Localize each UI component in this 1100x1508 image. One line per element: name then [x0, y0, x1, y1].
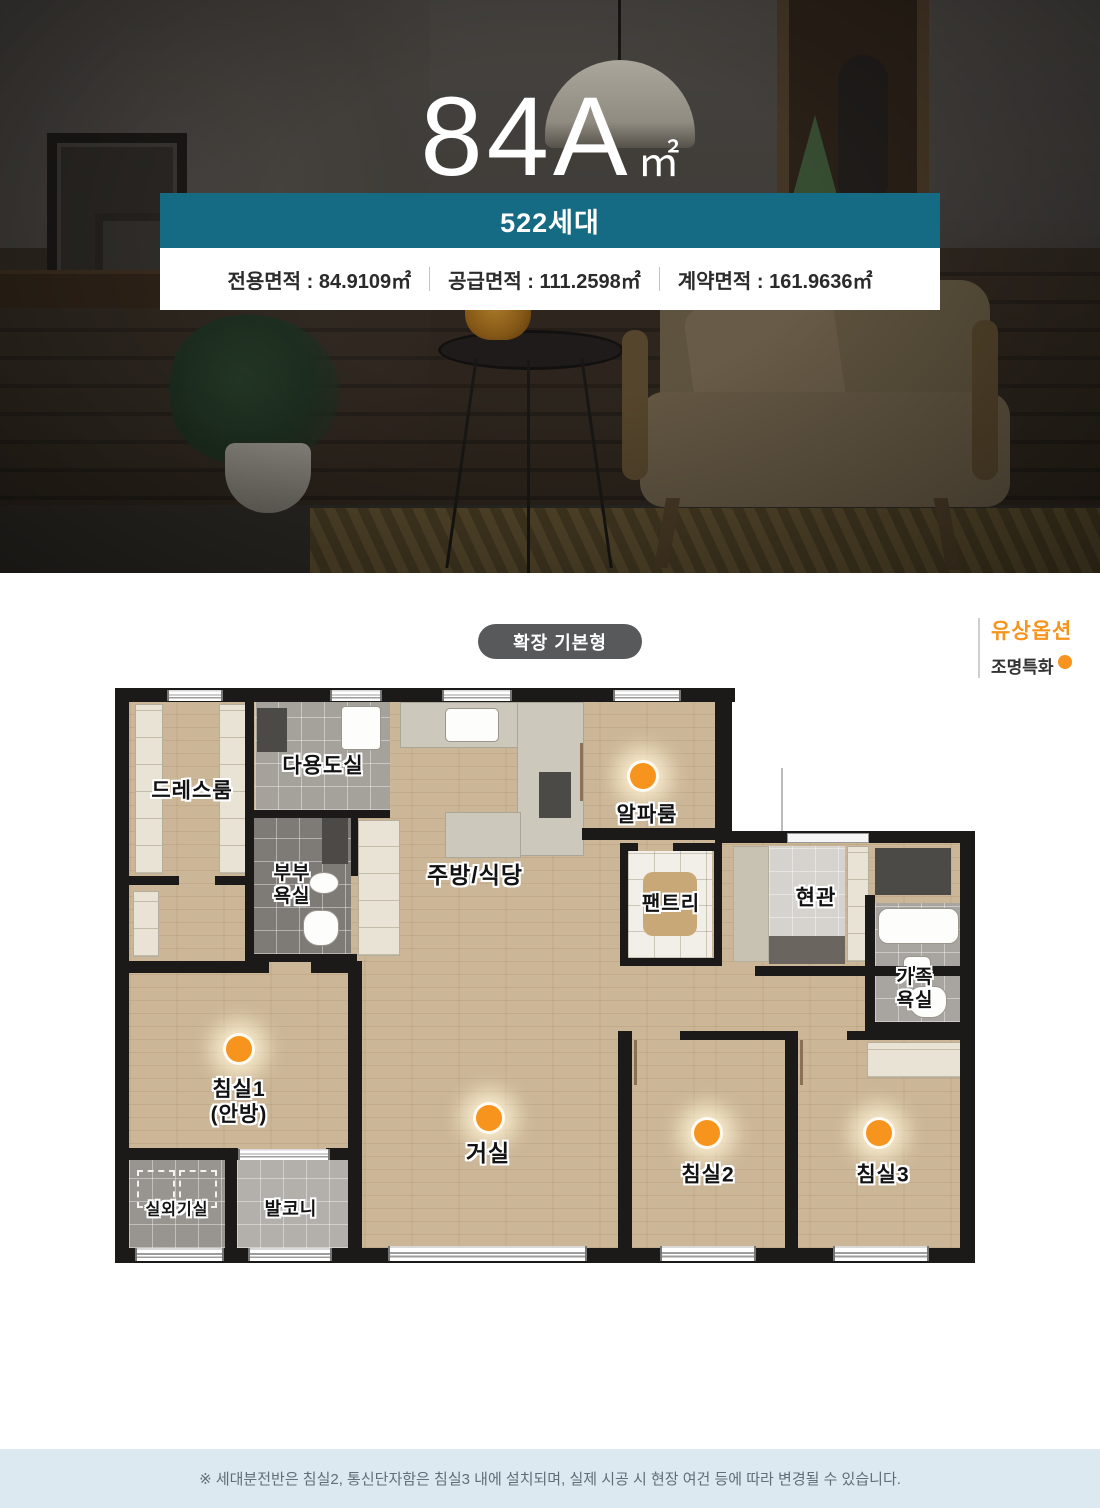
legend-title: 유상옵션	[991, 615, 1072, 645]
wall	[714, 843, 722, 966]
family-bath-tub	[878, 908, 959, 944]
floorplan: 드레스룸 다용도실 부부 욕실 주방/식당 알파룸 팬트리 현관 가족 욕실 침…	[115, 688, 975, 1266]
unit-type-title-unit: ㎡	[638, 128, 680, 189]
unit-type-title-text: 84A	[420, 81, 631, 193]
room-label-living: 거실	[466, 1140, 510, 1168]
footer-note-text: ※ 세대분전반은 침실2, 통신단자함은 침실3 내에 설치되며, 실제 시공 …	[199, 1468, 901, 1489]
lighting-dot-bedroom3	[863, 1117, 895, 1149]
lighting-dot-alpha	[627, 760, 659, 792]
wall	[351, 818, 358, 876]
wall	[215, 876, 254, 885]
wall	[129, 961, 269, 973]
window	[330, 690, 382, 701]
wall	[865, 895, 875, 1023]
wall	[847, 1031, 965, 1040]
entrance-door	[787, 833, 869, 843]
entrance-porch-line	[781, 768, 783, 831]
room-label-entrance: 현관	[796, 885, 837, 910]
window	[388, 1246, 587, 1261]
room-label-utility: 다용도실	[282, 753, 363, 778]
household-count-badge: 522세대	[160, 193, 940, 248]
room-label-balcony: 발코니	[265, 1199, 318, 1221]
wall	[715, 688, 732, 843]
window	[248, 1248, 332, 1261]
room-label-bedroom3: 침실3	[856, 1162, 909, 1187]
alpha-room-door	[580, 743, 583, 801]
hero-image: 84A ㎡ 522세대 전용면적 : 84.9109㎡ 공급면적 : 111.2…	[0, 0, 1100, 573]
room-label-bedroom1: 침실1 (안방)	[211, 1077, 268, 1127]
wall	[785, 1040, 798, 1248]
legend-divider	[978, 618, 980, 678]
wall	[129, 876, 179, 885]
wall	[618, 1031, 632, 1248]
window	[135, 1248, 224, 1261]
window	[833, 1246, 929, 1261]
wall	[245, 702, 254, 954]
area-exclusive: 전용면적 : 84.9109㎡	[227, 265, 411, 294]
wall	[129, 1148, 238, 1160]
wall	[680, 1031, 798, 1040]
room-label-pantry: 팬트리	[642, 892, 700, 916]
room-label-kitchen: 주방/식당	[427, 862, 523, 890]
bedroom2-door	[634, 1040, 637, 1085]
unit-type-title: 84A ㎡	[0, 48, 1100, 193]
area-contract: 계약면적 : 161.9636㎡	[678, 265, 873, 294]
kitchen-stove	[539, 772, 571, 818]
room-label-couple-bath: 부부 욕실	[274, 863, 311, 909]
entrance-shoe-cabinet	[733, 846, 769, 962]
wall	[582, 828, 732, 840]
window	[442, 690, 512, 701]
wall	[225, 1160, 237, 1260]
household-count-text: 522세대	[500, 201, 600, 240]
couple-bath-duct	[322, 818, 348, 864]
utility-sink	[341, 706, 381, 750]
kitchen-tall-cabinet	[358, 820, 400, 956]
window	[613, 690, 681, 701]
wall	[348, 961, 362, 1263]
paid-option-legend: 유상옵션 조명특화	[978, 615, 1098, 685]
wall	[115, 688, 129, 1263]
lighting-dot-living	[473, 1102, 505, 1134]
wall	[253, 810, 390, 818]
couple-bath-sink	[309, 872, 339, 894]
lighting-dot-bedroom1	[223, 1033, 255, 1065]
legend-item-label: 조명특화	[991, 653, 1054, 678]
area-supply: 공급면적 : 111.2598㎡	[448, 265, 641, 294]
window	[238, 1149, 330, 1160]
window	[167, 690, 223, 701]
area-info-bar: 전용면적 : 84.9109㎡ 공급면적 : 111.2598㎡ 계약면적 : …	[160, 248, 940, 310]
wall	[960, 831, 975, 1263]
room-label-bedroom2: 침실2	[681, 1162, 734, 1187]
bedroom3-closet	[867, 1042, 962, 1078]
lighting-dot-bedroom2	[691, 1117, 723, 1149]
plan-type-badge[interactable]: 확장 기본형	[478, 624, 642, 659]
room-label-dressroom: 드레스룸	[151, 778, 232, 803]
divider	[429, 267, 430, 291]
divider	[659, 267, 660, 291]
window	[660, 1246, 756, 1261]
wall	[620, 958, 722, 966]
couple-bath-toilet	[303, 910, 339, 946]
wall	[620, 843, 628, 966]
kitchen-sink	[445, 708, 499, 742]
kitchen-island	[445, 812, 521, 858]
utility-boiler	[257, 708, 287, 752]
entrance-mat	[769, 936, 845, 964]
hall-closet	[133, 891, 159, 957]
room-label-ac-room: 실외기실	[146, 1200, 209, 1219]
room-label-alpha: 알파룸	[617, 802, 678, 827]
bedroom3-door	[800, 1040, 803, 1085]
footer-note-bar: ※ 세대분전반은 침실2, 통신단자함은 침실3 내에 설치되며, 실제 시공 …	[0, 1449, 1100, 1508]
lighting-option-dot-icon	[1058, 655, 1072, 669]
family-bath-duct	[875, 848, 951, 895]
page: 84A ㎡ 522세대 전용면적 : 84.9109㎡ 공급면적 : 111.2…	[0, 0, 1100, 1508]
room-label-family-bath: 가족 욕실	[897, 967, 934, 1013]
